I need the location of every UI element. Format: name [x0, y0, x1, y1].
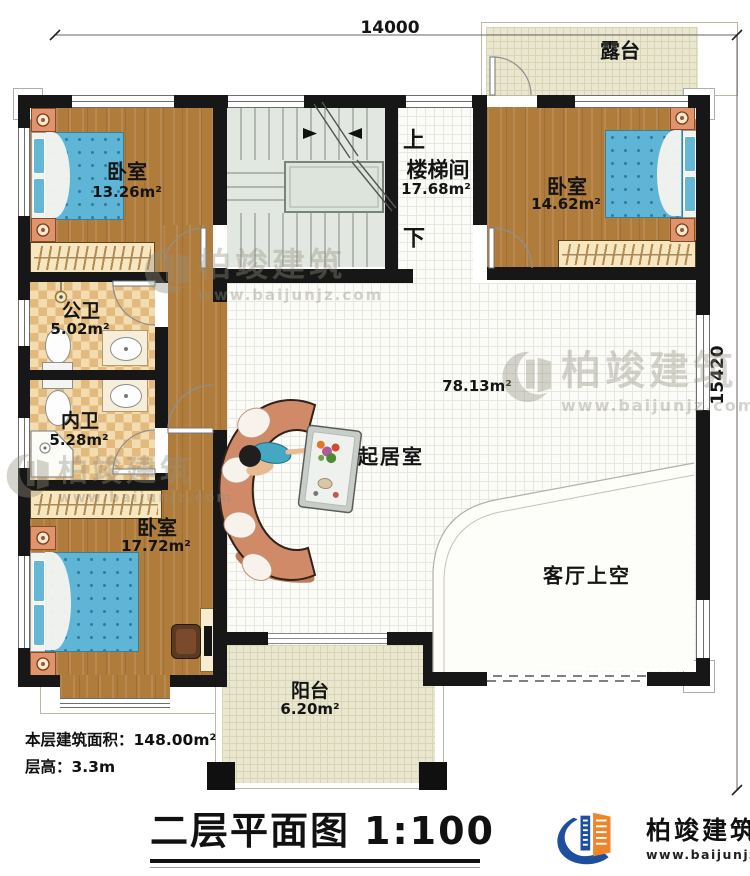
- room-area-balcony: 6.20m²: [280, 702, 339, 718]
- wardrobe-bedroom-top-right: [558, 240, 696, 269]
- tv: [204, 626, 212, 656]
- wall-segment: [174, 95, 228, 108]
- pillow: [684, 136, 696, 172]
- door-opening: [473, 225, 487, 268]
- wall-bath-top: [18, 272, 168, 282]
- brand-url: www.baijunjz.com: [646, 847, 750, 862]
- room-label-living: 起居室: [358, 447, 424, 468]
- sink-basin: [110, 384, 142, 408]
- window: [575, 95, 688, 108]
- brand-logo-icon: [550, 806, 642, 866]
- room-area-bedroom-tl: 13.26m²: [92, 185, 162, 201]
- room-label-balcony: 阳台: [291, 682, 329, 702]
- stair-up-label: 上: [403, 129, 425, 152]
- page-title: 二层平面图1:100: [150, 800, 480, 855]
- window: [18, 418, 30, 468]
- room-label-void: 客厅上空: [543, 566, 631, 587]
- wall-stair-right: [385, 107, 398, 283]
- wall-bedroom-tr-bottom: [487, 267, 696, 280]
- balcony-column: [419, 762, 447, 790]
- pillow: [684, 176, 696, 212]
- nightstand: [30, 652, 56, 676]
- window: [72, 95, 174, 108]
- window: [228, 95, 304, 108]
- brand-block: 柏竣建筑 www.baijunjz.com: [550, 806, 750, 866]
- wall-balcony-left: [213, 632, 268, 645]
- terrace-floor: [486, 27, 698, 95]
- window: [406, 95, 472, 108]
- armchair: [171, 624, 201, 659]
- title-block: 二层平面图1:100: [150, 800, 480, 868]
- pillow: [33, 560, 45, 602]
- wall-bedroom-b-right: [213, 430, 227, 687]
- room-area-living: 78.13m²: [442, 379, 512, 395]
- room-area-bedroom-tr: 14.62m²: [531, 197, 601, 213]
- nightstand: [31, 218, 56, 242]
- room-label-stairwell: 楼梯间: [407, 159, 470, 181]
- sink-basin: [110, 337, 142, 361]
- dim-right-label: 15420: [710, 345, 728, 404]
- wall-bath-mid: [18, 370, 155, 380]
- door-opening: [155, 283, 168, 327]
- floor-plan-canvas: 14000 15420 露台 卧室 13.26m² 上 楼梯间 17.68m² …: [0, 0, 750, 876]
- door-opening: [213, 225, 227, 268]
- railing-window: [487, 672, 647, 686]
- floor-height-note: 层高：3.3m: [25, 755, 115, 777]
- room-area-bedroom-b: 17.72m²: [121, 539, 191, 555]
- pillow: [33, 604, 45, 646]
- nightstand: [30, 526, 56, 550]
- floor-area-note: 本层建筑面积：148.00m²: [25, 728, 216, 750]
- pillow: [33, 138, 45, 174]
- room-label-public-bath: 公卫: [62, 302, 100, 322]
- balcony-column: [207, 762, 235, 790]
- pillow: [33, 178, 45, 214]
- window: [18, 128, 30, 216]
- room-label-bedroom-tl: 卧室: [107, 162, 147, 183]
- title-underline-thin: [150, 867, 480, 868]
- wall-stair-left: [213, 108, 227, 302]
- title-scale: 1:100: [364, 809, 495, 853]
- nightstand: [31, 108, 56, 132]
- room-area-stairwell: 17.68m²: [401, 182, 471, 198]
- stair-down-label: 下: [403, 227, 425, 250]
- wall-segment: [537, 95, 575, 108]
- nightstand: [670, 218, 695, 242]
- nightstand: [670, 106, 695, 130]
- wall-bedroom-b-top: [18, 480, 168, 490]
- wall-segment: [423, 645, 435, 672]
- room-label-inner-bath: 内卫: [61, 412, 99, 432]
- wall-balcony-right: [387, 632, 435, 645]
- window: [18, 300, 30, 346]
- room-label-bedroom-b: 卧室: [137, 518, 177, 539]
- room-label-terrace: 露台: [600, 41, 640, 62]
- door-opening: [155, 428, 168, 473]
- bay-window: [60, 698, 170, 708]
- living-floor: [227, 283, 696, 672]
- wall-segment: [170, 675, 213, 687]
- wall-stair-bottom: [227, 269, 413, 283]
- window: [696, 600, 710, 658]
- stairwell-floor: [227, 108, 385, 267]
- wardrobe-bedroom-top-left: [30, 242, 155, 274]
- sliding-door: [268, 633, 387, 644]
- wall-segment: [18, 675, 60, 687]
- brand-name: 柏竣建筑: [646, 811, 750, 847]
- window: [18, 556, 30, 648]
- title-underline: [150, 859, 480, 863]
- title-text: 二层平面图: [150, 809, 350, 853]
- dim-top-label: 14000: [360, 20, 419, 38]
- room-area-public-bath: 5.02m²: [50, 322, 109, 338]
- room-area-inner-bath: 5.28m²: [49, 433, 108, 449]
